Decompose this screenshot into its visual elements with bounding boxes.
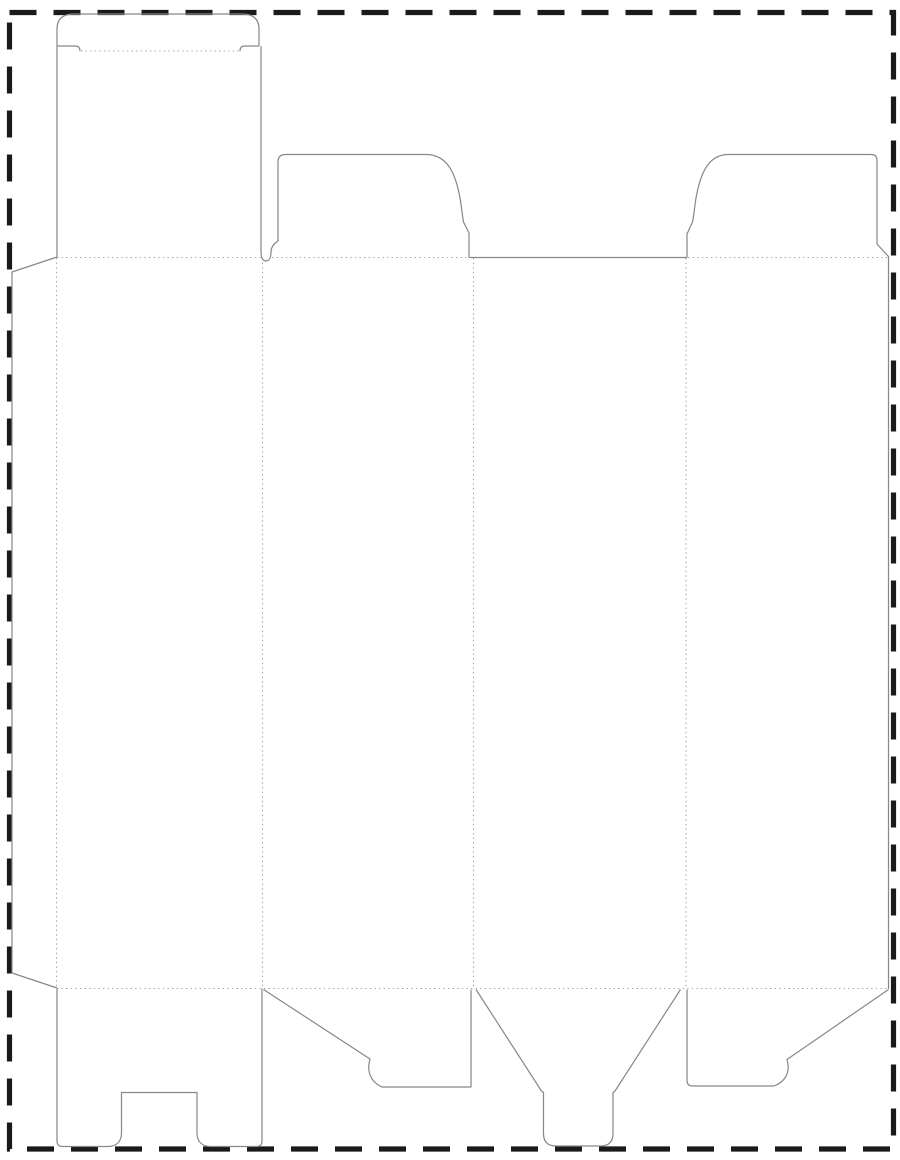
glue-flap-outline bbox=[12, 257, 57, 988]
left-dust-flap-outline bbox=[261, 46, 469, 261]
artboard-background bbox=[0, 0, 900, 1160]
dieline-artboard bbox=[0, 0, 900, 1160]
fold-lines-group bbox=[57, 51, 889, 989]
cut-lines-group bbox=[12, 14, 889, 1147]
tuck-flap-right-shoulder bbox=[240, 46, 259, 51]
bottom-flap-2-angled bbox=[264, 990, 472, 1088]
tuck-flap-outline bbox=[57, 14, 259, 46]
tuck-flap-left-shoulder bbox=[57, 46, 80, 51]
bottom-flap-4-angled bbox=[687, 990, 889, 1087]
right-dust-flap-outline bbox=[687, 155, 889, 258]
bottom-flap-3-tongue bbox=[476, 990, 681, 1147]
trim-border-dashed bbox=[10, 13, 894, 1150]
dieline-svg bbox=[0, 0, 900, 1160]
bottom-flap-1-notched bbox=[57, 989, 262, 1147]
